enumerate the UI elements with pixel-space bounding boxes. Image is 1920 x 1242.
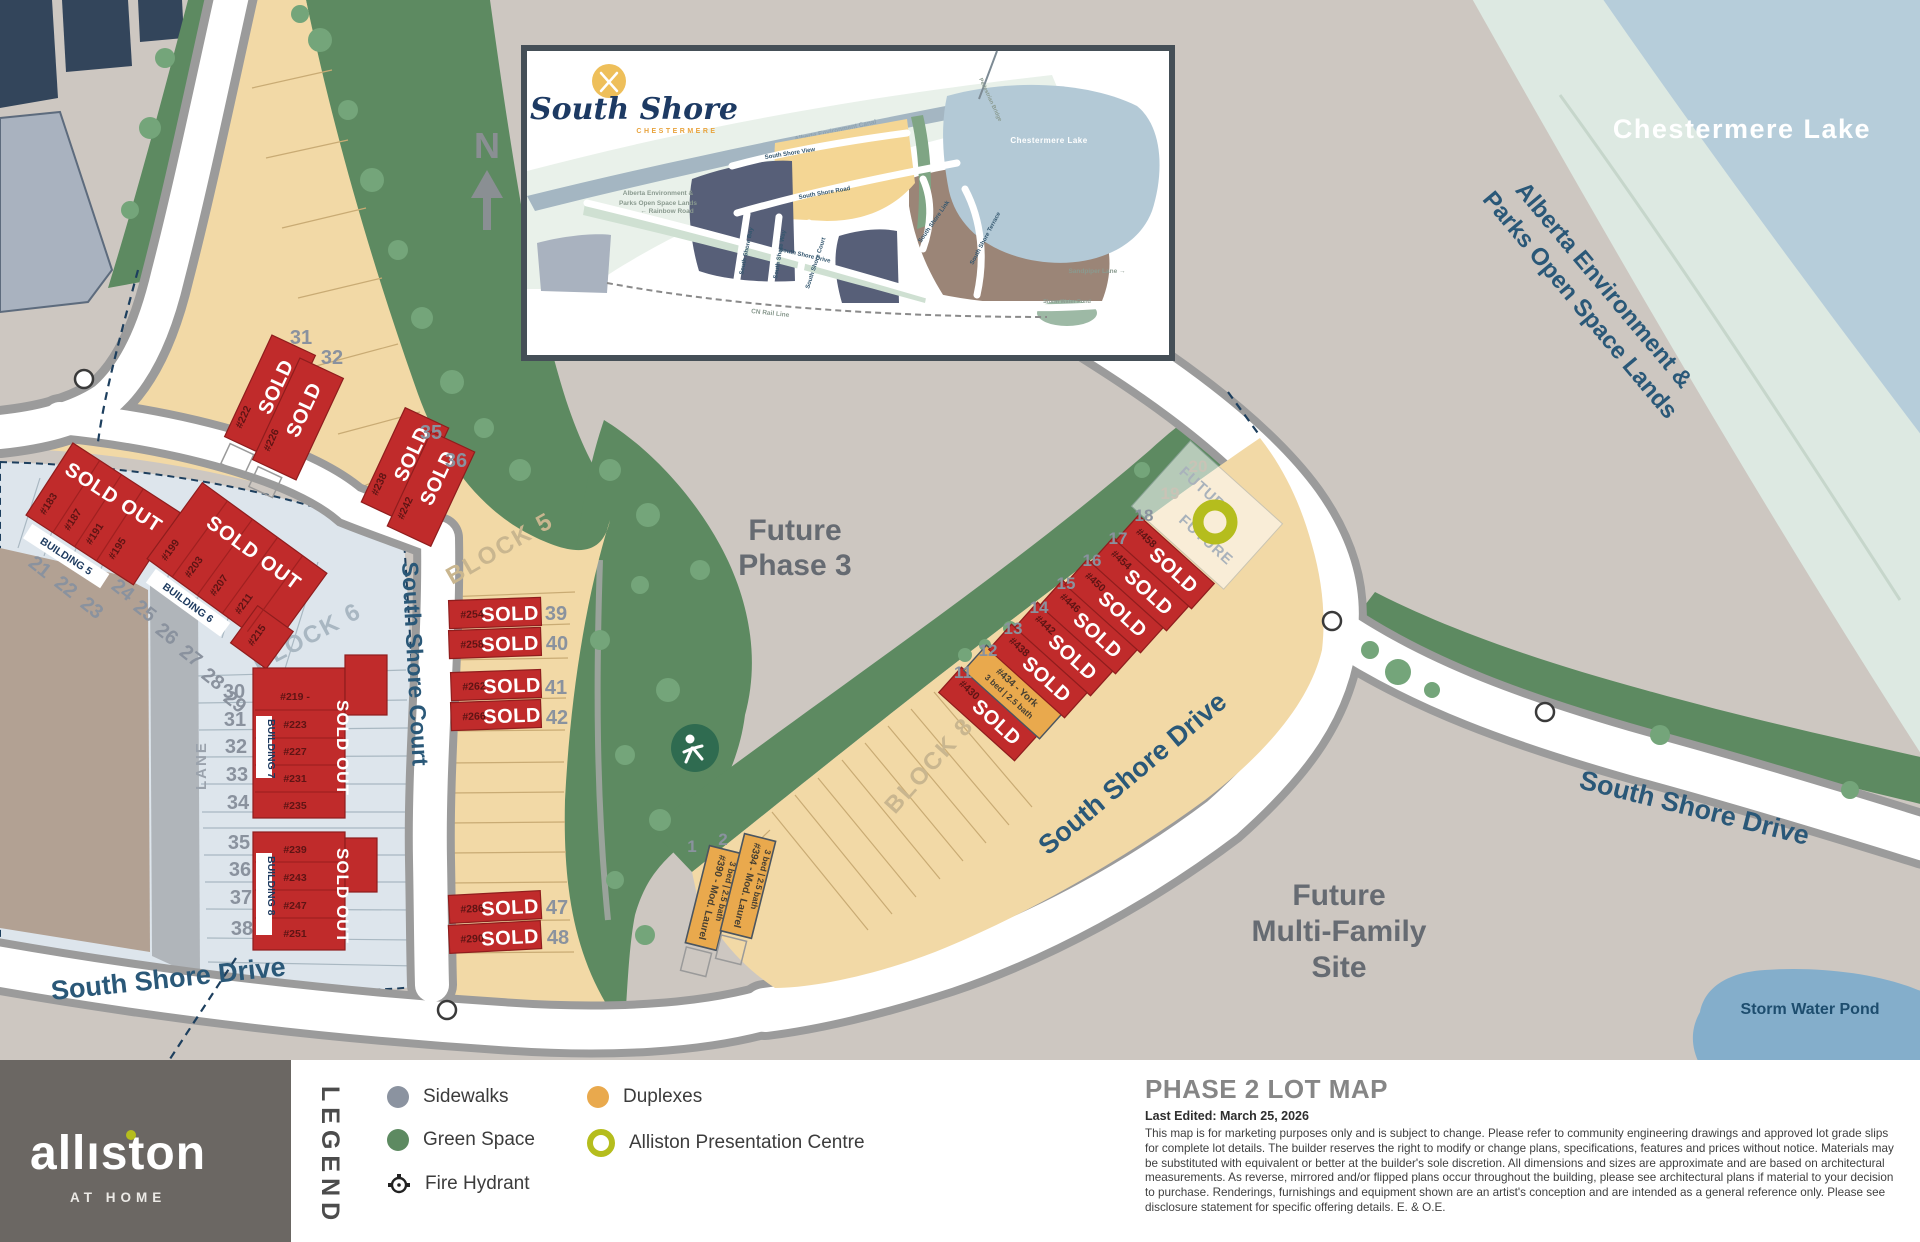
storm-water-pond: Storm Water Pond	[1693, 969, 1920, 1065]
lane-label: LANE	[193, 741, 210, 790]
legend-item-fire-hydrant: Fire Hydrant	[387, 1172, 530, 1196]
legend-item-sidewalks: Sidewalks	[387, 1086, 509, 1108]
building-7-chip: BUILDING 7	[265, 719, 277, 779]
svg-text:Future: Future	[1292, 879, 1385, 912]
svg-text:Sandpiper Lane →: Sandpiper Lane →	[1068, 268, 1125, 275]
legend-title: LEGEND	[315, 1086, 344, 1226]
svg-text:32: 32	[225, 736, 247, 758]
svg-text:Future: Future	[748, 514, 841, 547]
svg-text:#235: #235	[283, 800, 307, 812]
legend-label: Duplexes	[623, 1086, 702, 1108]
svg-text:#243: #243	[283, 872, 307, 884]
fire-hydrant-icon	[387, 1172, 411, 1196]
brand-tagline: AT HOME	[70, 1190, 166, 1205]
svg-text:11: 11	[954, 663, 972, 682]
svg-text:Site: Site	[1311, 951, 1366, 984]
svg-text:34: 34	[227, 792, 250, 814]
svg-text:36: 36	[445, 450, 467, 472]
svg-text:1: 1	[687, 837, 696, 856]
svg-text:SOLD: SOLD	[483, 704, 541, 728]
svg-text:SOLD: SOLD	[481, 632, 539, 656]
svg-text:36: 36	[229, 859, 251, 881]
svg-text:38: 38	[231, 918, 253, 940]
svg-text:#219 -: #219 -	[280, 691, 310, 703]
brand-panel: allıston AT HOME	[0, 1060, 291, 1242]
svg-text:16: 16	[1083, 551, 1102, 570]
svg-text:#239: #239	[283, 844, 307, 856]
legend-label: Alliston Presentation Centre	[629, 1132, 865, 1154]
svg-text:13: 13	[1004, 619, 1023, 638]
svg-text:Parks Open Space Lands: Parks Open Space Lands	[619, 200, 697, 207]
inset-overview-map: Alberta Environment Canal Chestermere La…	[524, 48, 1172, 358]
playground-icon	[671, 724, 719, 772]
duplexes-swatch-icon	[587, 1086, 609, 1108]
svg-text:20: 20	[1189, 457, 1208, 476]
svg-text:2: 2	[718, 830, 727, 849]
svg-text:Alberta Environment &: Alberta Environment &	[623, 190, 694, 197]
svg-text:37: 37	[230, 887, 252, 909]
sidewalks-swatch-icon	[387, 1086, 409, 1108]
svg-text:SOLD: SOLD	[481, 926, 540, 951]
presentation-centre-ring-icon	[587, 1129, 615, 1157]
legend-panel: LEGEND Sidewalks Green Space Fire Hydran…	[291, 1060, 1920, 1242]
disclaimer-text: This map is for marketing purposes only …	[1145, 1127, 1900, 1216]
svg-text:SOLD: SOLD	[481, 602, 539, 626]
legend-item-green-space: Green Space	[387, 1129, 535, 1151]
svg-text:35: 35	[228, 832, 250, 854]
svg-text:#227: #227	[283, 746, 307, 758]
legend-label: Fire Hydrant	[425, 1173, 530, 1195]
svg-text:CHESTERMERE: CHESTERMERE	[636, 128, 717, 135]
svg-text:14: 14	[1030, 598, 1049, 617]
svg-text:← Rainbow Road: ← Rainbow Road	[640, 208, 693, 215]
svg-text:40: 40	[546, 633, 568, 655]
alliston-logo: allıston	[30, 1126, 206, 1181]
west-brown-block	[0, 548, 150, 952]
svg-text:32: 32	[321, 347, 343, 369]
svg-text:SOLD OUT: SOLD OUT	[333, 848, 352, 944]
svg-text:Storm Water Pond: Storm Water Pond	[1741, 1001, 1880, 1018]
svg-text:35: 35	[420, 422, 442, 444]
legend-label: Sidewalks	[423, 1086, 509, 1108]
svg-text:48: 48	[547, 927, 569, 949]
brand-part: all	[30, 1127, 86, 1180]
lake-label: Chestermere Lake	[1613, 114, 1871, 144]
last-edited: Last Edited: March 25, 2026	[1145, 1109, 1309, 1123]
building-8-chip: BUILDING 8	[265, 856, 277, 916]
svg-text:Chestermere Lake: Chestermere Lake	[1010, 136, 1087, 145]
svg-text:SOLD: SOLD	[483, 674, 541, 698]
svg-text:#247: #247	[283, 900, 307, 912]
brand-part: ston	[101, 1127, 206, 1180]
svg-text:17: 17	[1109, 529, 1128, 548]
site-map: Chestermere Lake Alberta Environment & P…	[0, 0, 1920, 1242]
svg-text:#223: #223	[283, 719, 307, 731]
svg-text:Phase 3: Phase 3	[738, 549, 851, 582]
svg-text:Storm Water Pond: Storm Water Pond	[1043, 299, 1091, 305]
svg-text:Multi-Family: Multi-Family	[1251, 915, 1426, 948]
svg-text:31: 31	[290, 327, 312, 349]
svg-text:39: 39	[545, 603, 567, 625]
svg-text:30: 30	[223, 681, 245, 703]
svg-text:15: 15	[1057, 574, 1076, 593]
svg-text:33: 33	[226, 764, 248, 786]
svg-text:12: 12	[979, 641, 998, 660]
svg-text:31: 31	[224, 709, 246, 731]
svg-text:#251: #251	[283, 928, 307, 940]
compass-n-label: N	[474, 125, 500, 166]
brand-lime-dot-icon	[126, 1130, 136, 1140]
legend-item-presentation-centre: Alliston Presentation Centre	[587, 1129, 865, 1157]
brand-dotless-i: ı	[86, 1127, 100, 1180]
legend-item-duplexes: Duplexes	[587, 1086, 702, 1108]
svg-text:47: 47	[546, 897, 568, 919]
svg-text:42: 42	[546, 707, 568, 729]
svg-text:18: 18	[1135, 506, 1154, 525]
legend-label: Green Space	[423, 1129, 535, 1151]
svg-text:South Shore: South Shore	[530, 92, 738, 127]
svg-text:19: 19	[1161, 484, 1180, 503]
green-space-swatch-icon	[387, 1129, 409, 1151]
svg-text:SOLD: SOLD	[481, 896, 540, 921]
phase2-lot-map-page: Chestermere Lake Alberta Environment & P…	[0, 0, 1920, 1242]
svg-text:41: 41	[545, 677, 567, 699]
phase2-heading: PHASE 2 LOT MAP	[1145, 1074, 1388, 1105]
svg-text:SOLD OUT: SOLD OUT	[333, 700, 352, 796]
svg-text:#231: #231	[283, 773, 307, 785]
